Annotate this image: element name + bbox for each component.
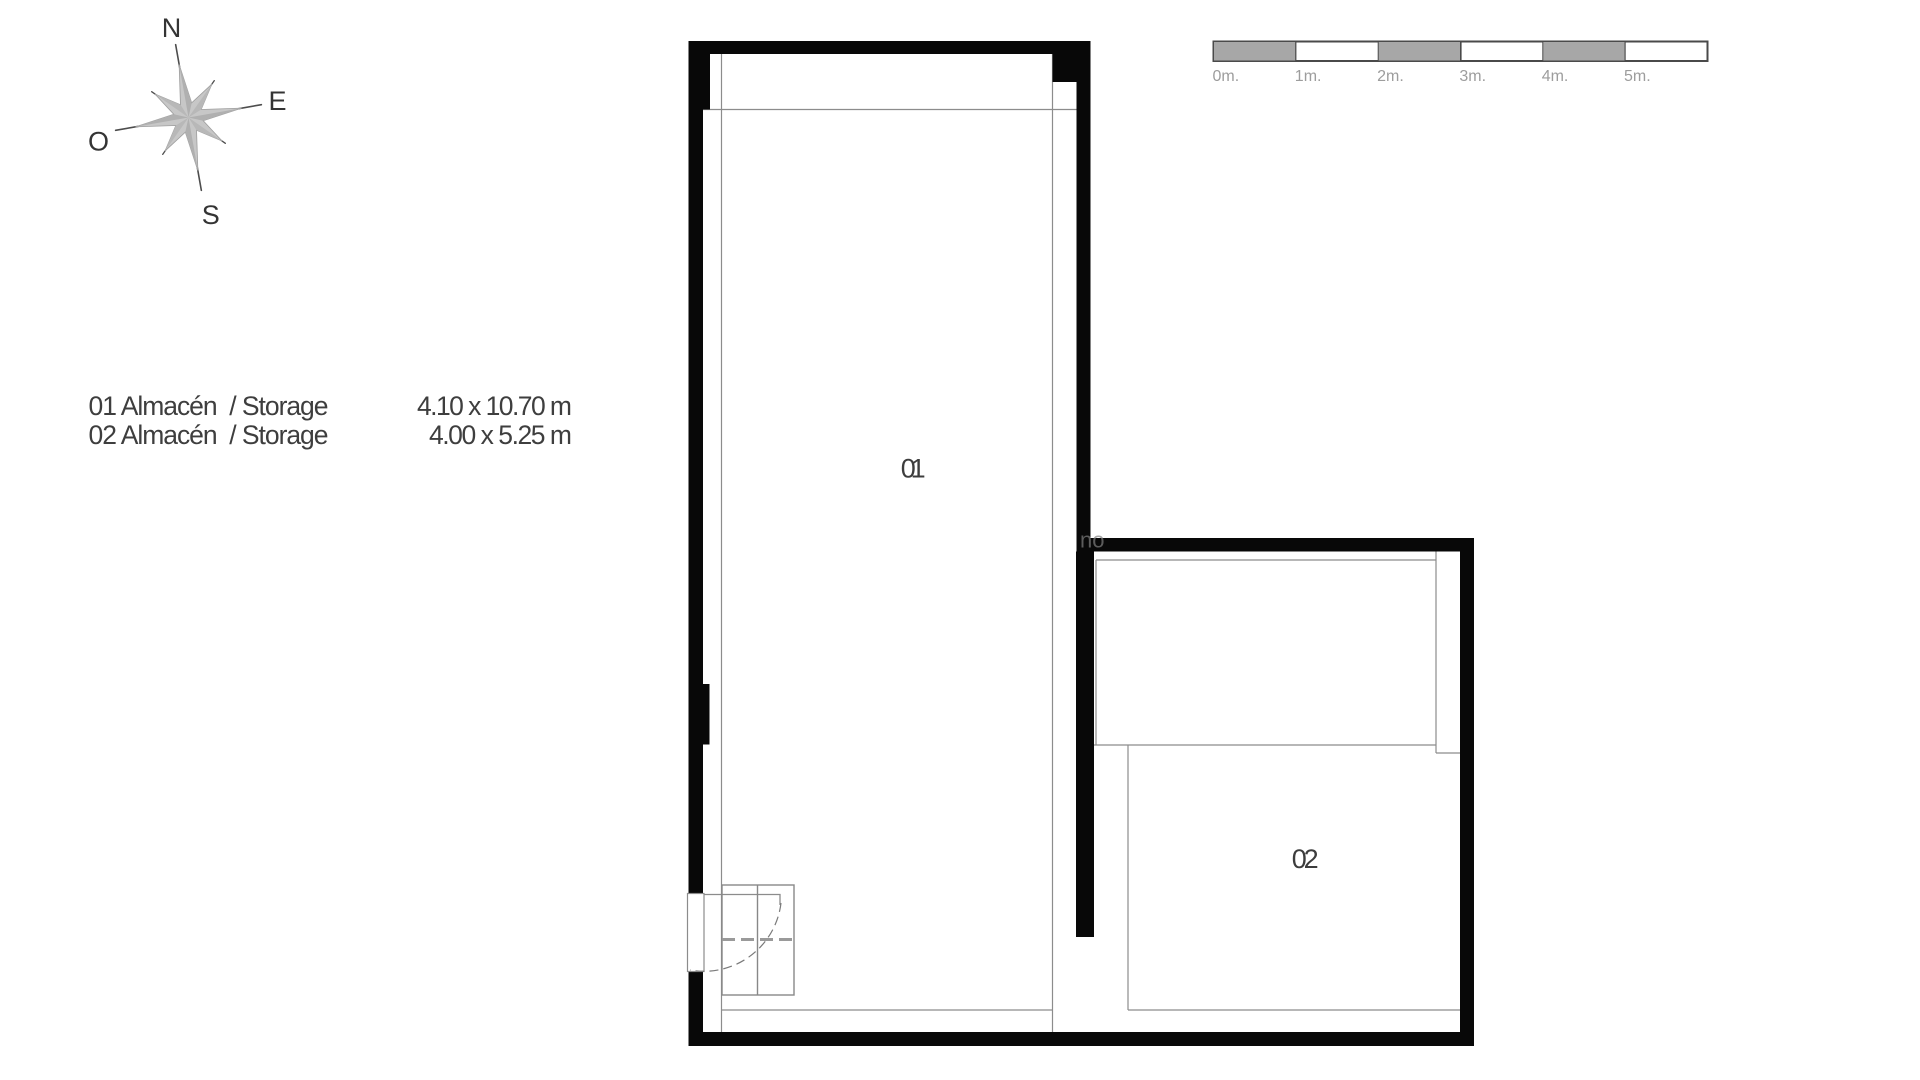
- svg-text:2m.: 2m.: [1377, 68, 1404, 85]
- svg-text:4m.: 4m.: [1542, 68, 1569, 85]
- svg-text:01 Almacén / Storage: 01 Almacén / Storage: [89, 391, 329, 421]
- svg-text:4.10 x 10.70 m: 4.10 x 10.70 m: [417, 391, 572, 421]
- svg-text:E: E: [268, 86, 286, 116]
- svg-text:0m.: 0m.: [1213, 68, 1240, 85]
- svg-text:02 Almacén / Storage: 02 Almacén / Storage: [89, 420, 329, 450]
- svg-text:4.00 x 5.25 m: 4.00 x 5.25 m: [429, 420, 572, 450]
- svg-text:3m.: 3m.: [1459, 68, 1486, 85]
- svg-text:02: 02: [1292, 844, 1319, 874]
- svg-text:S: S: [202, 200, 220, 230]
- svg-text:no: no: [1080, 528, 1105, 553]
- svg-text:N: N: [162, 13, 182, 43]
- svg-text:01: 01: [901, 454, 926, 484]
- svg-text:O: O: [88, 127, 109, 157]
- svg-text:1m.: 1m.: [1295, 68, 1322, 85]
- svg-text:5m.: 5m.: [1624, 68, 1651, 85]
